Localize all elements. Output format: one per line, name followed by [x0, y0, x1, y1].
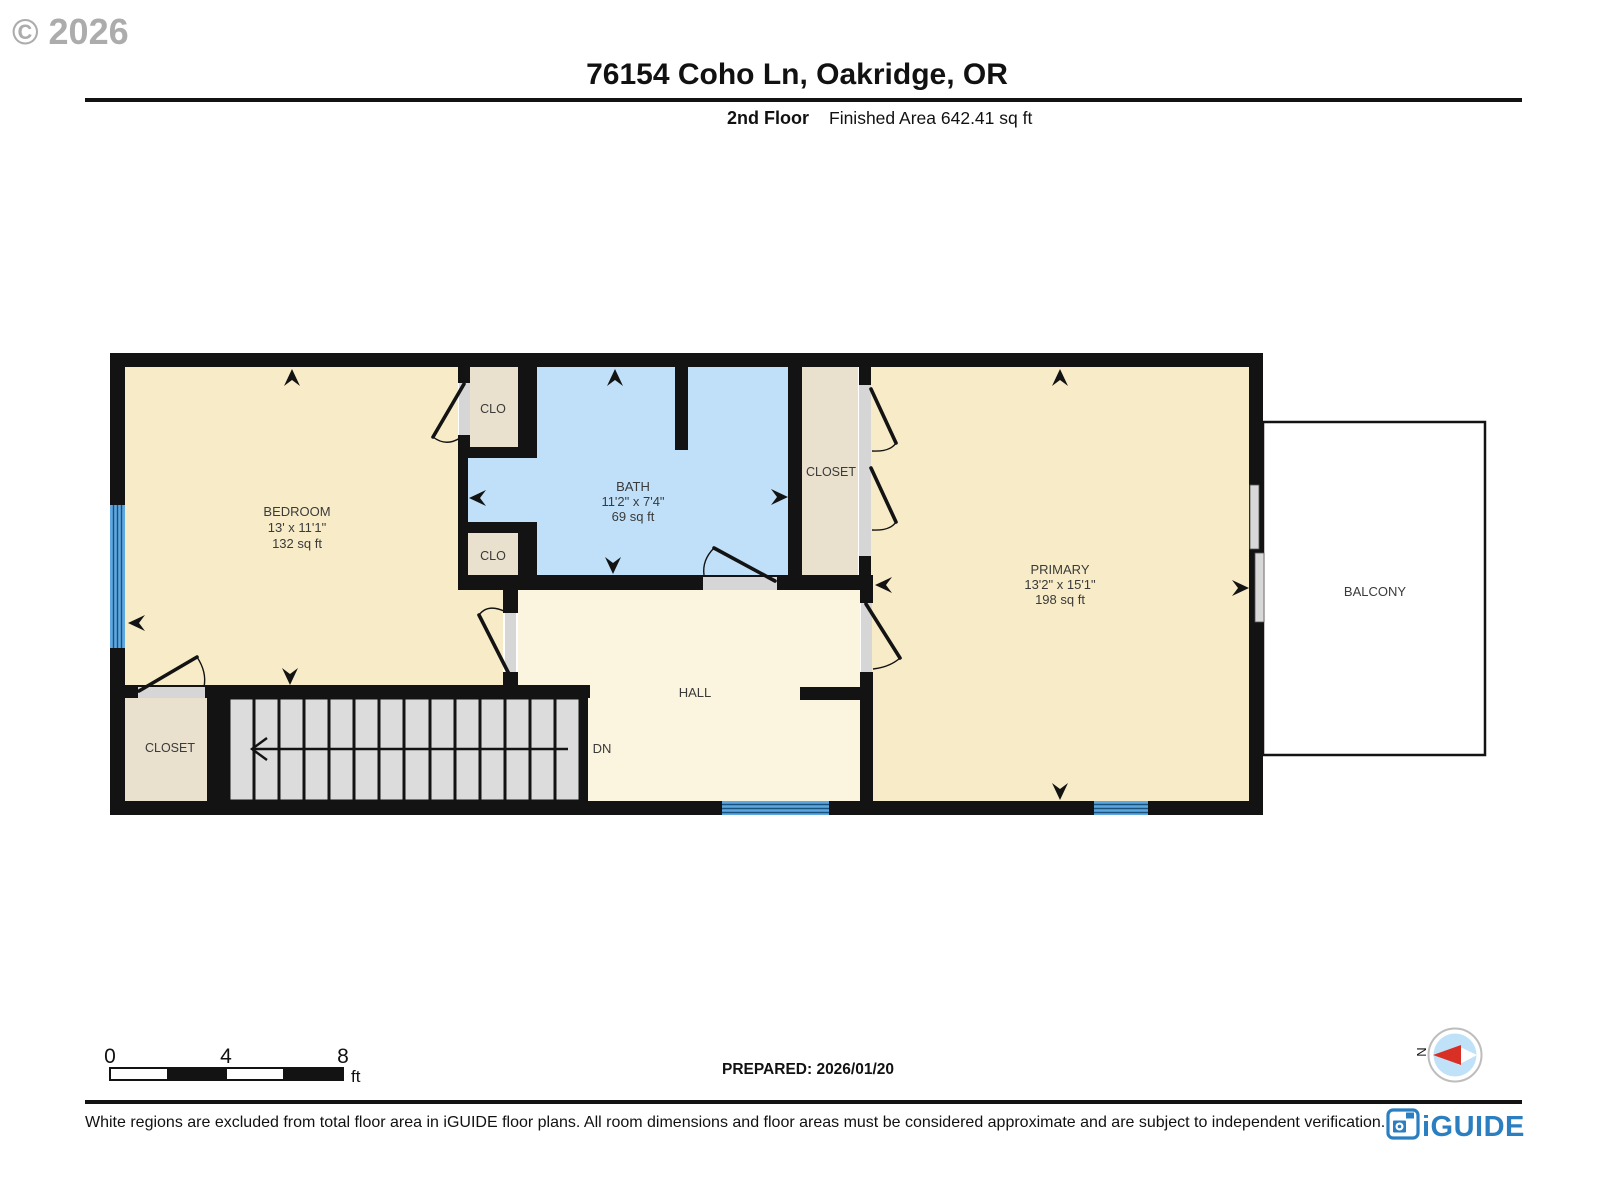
balcony-label: BALCONY: [1344, 584, 1406, 599]
staircase: [229, 698, 580, 801]
compass-icon: N: [1414, 1029, 1482, 1082]
header: 76154 Coho Ln, Oakridge, OR 2nd FloorFin…: [85, 58, 1522, 128]
bedroom-area: 132 sq ft: [272, 536, 322, 551]
window-left: [110, 505, 125, 648]
room-bath-entry: [468, 458, 537, 522]
primary-dims: 13'2" x 15'1": [1024, 577, 1096, 592]
scale-tick-8: 8: [337, 1045, 349, 1068]
footer: White regions are excluded from total fl…: [85, 1100, 1525, 1143]
iguide-logo-icon: [1388, 1110, 1418, 1138]
closet-right-label: CLOSET: [806, 465, 856, 479]
scale-bar: 0 4 8 ft: [104, 1045, 361, 1086]
compass-north-label: N: [1414, 1047, 1429, 1056]
bath-area: 69 sq ft: [612, 509, 655, 524]
floor-plan: BEDROOM 13' x 11'1" 132 sq ft BATH 11'2"…: [110, 353, 1485, 815]
clo-top-label: CLO: [480, 402, 506, 416]
floor-subtitle: 2nd FloorFinished Area 642.41 sq ft: [727, 108, 1032, 128]
scale-unit-label: ft: [351, 1067, 361, 1086]
bath-label: BATH: [616, 479, 650, 494]
prepared-date: PREPARED: 2026/01/20: [722, 1061, 894, 1078]
bedroom-dims: 13' x 11'1": [268, 520, 327, 535]
bath-dims: 11'2" x 7'4": [601, 494, 664, 509]
primary-label: PRIMARY: [1031, 562, 1090, 577]
hall-label: HALL: [679, 685, 712, 700]
scale-tick-0: 0: [104, 1045, 116, 1068]
iguide-logo-text: iGUIDE: [1422, 1111, 1525, 1143]
room-bedroom-extension: [458, 590, 503, 685]
floorplan-canvas: © 2026 76154 Coho Ln, Oakridge, OR 2nd F…: [0, 0, 1600, 1200]
bedroom-label: BEDROOM: [263, 504, 330, 519]
header-rule: [85, 98, 1522, 102]
footer-disclaimer: White regions are excluded from total fl…: [85, 1114, 1385, 1131]
page-title: 76154 Coho Ln, Oakridge, OR: [586, 58, 1008, 91]
scale-tick-4: 4: [220, 1045, 232, 1068]
floor-label: 2nd Floor: [727, 108, 809, 128]
closet-left-label: CLOSET: [145, 741, 195, 755]
stairs-dn-label: DN: [593, 741, 612, 756]
copyright-watermark: © 2026: [12, 11, 129, 52]
primary-area: 198 sq ft: [1035, 592, 1085, 607]
window-primary-bottom: [1094, 801, 1148, 815]
room-bath: [537, 367, 788, 575]
floorplan-page: © 2026 76154 Coho Ln, Oakridge, OR 2nd F…: [0, 0, 1600, 1200]
clo-bottom-label: CLO: [480, 549, 506, 563]
finished-area-label: Finished Area 642.41 sq ft: [829, 108, 1032, 128]
footer-rule: [85, 1100, 1522, 1104]
window-hall-bottom: [722, 801, 829, 815]
